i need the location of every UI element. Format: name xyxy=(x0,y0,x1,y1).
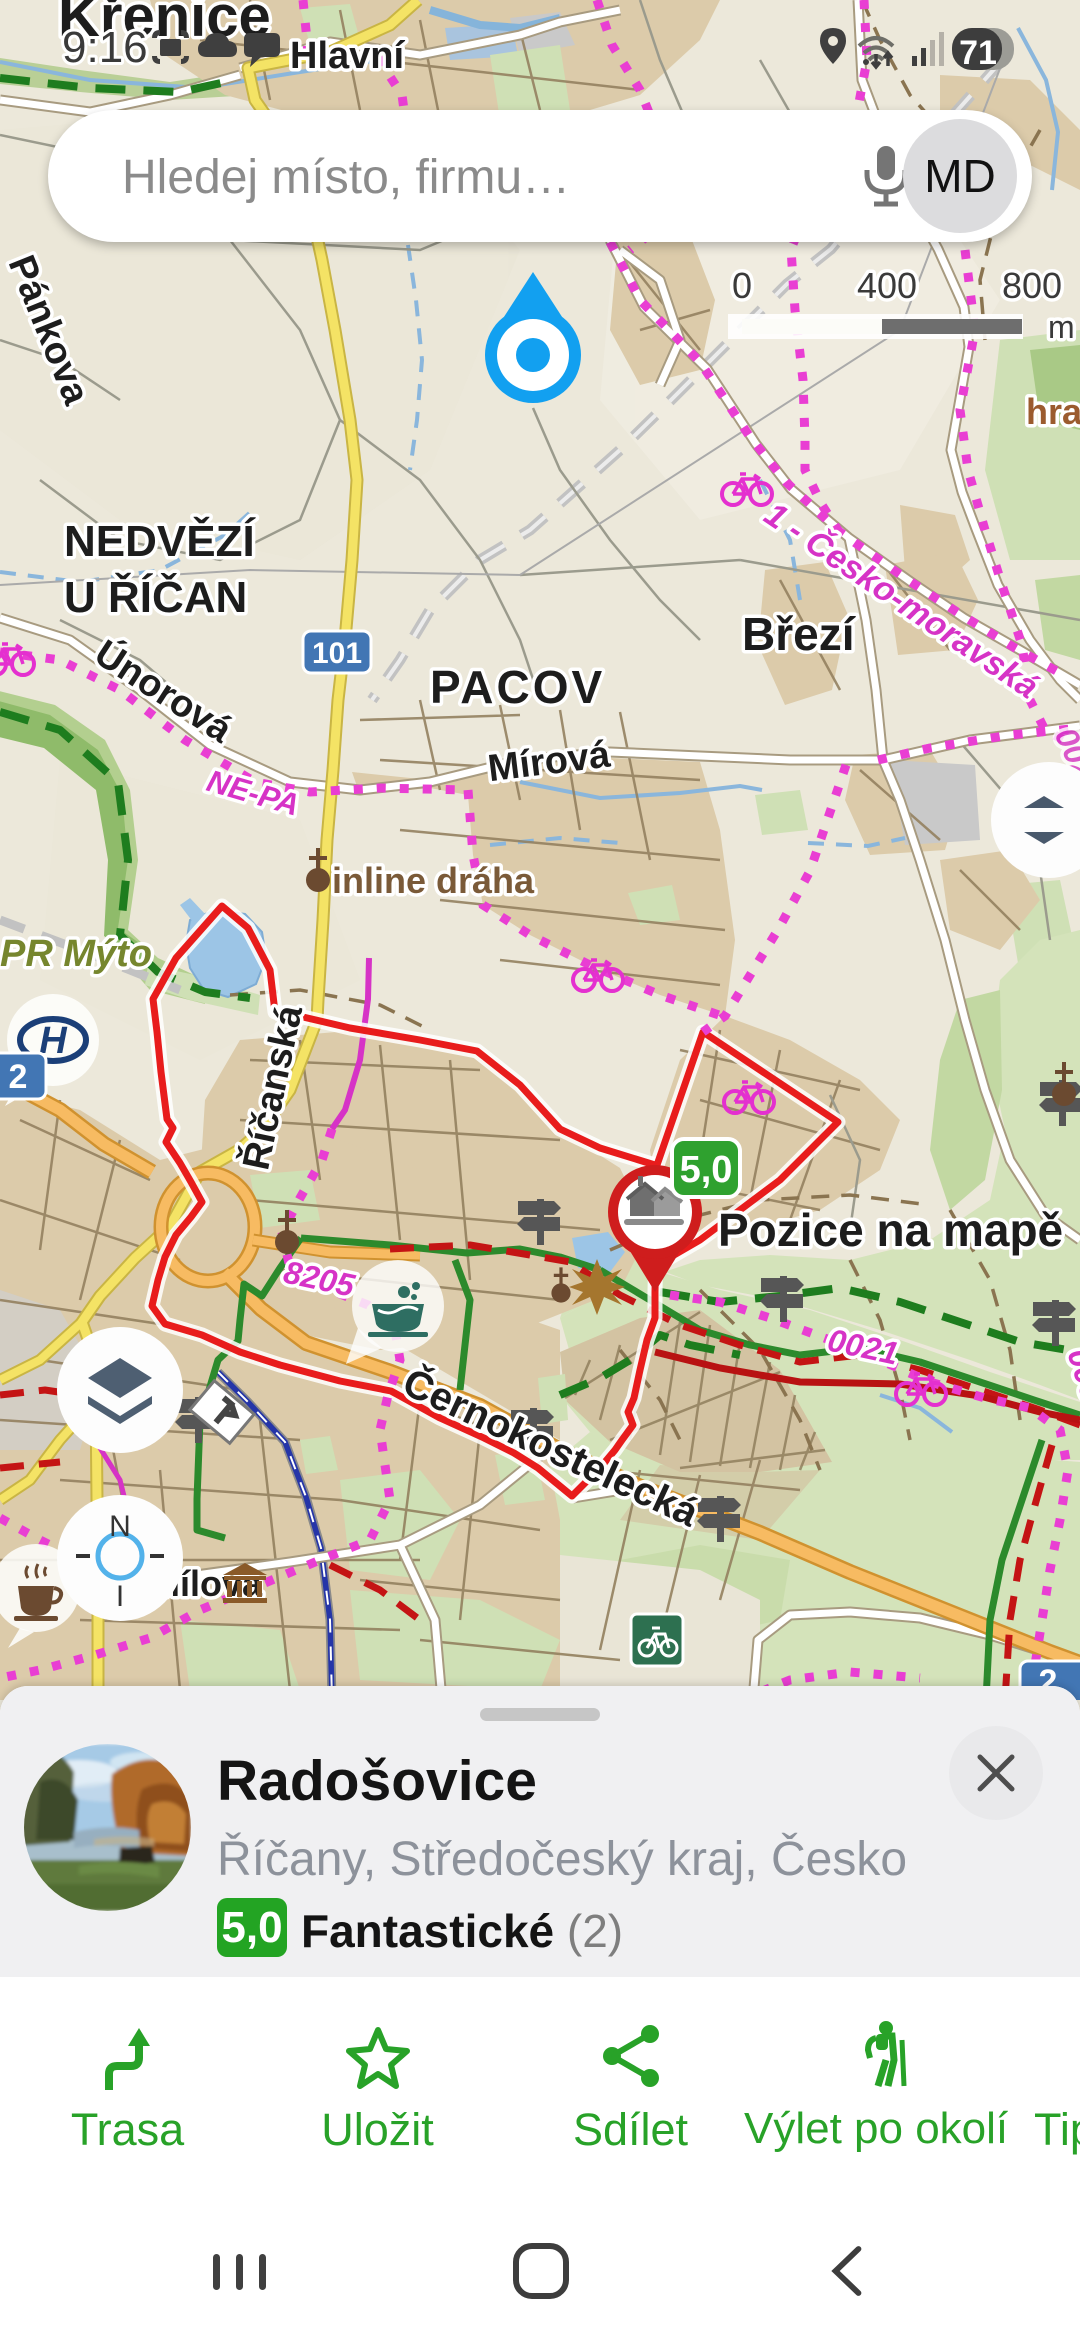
svg-text:U ŘÍČAN: U ŘÍČAN xyxy=(64,571,247,622)
svg-text:9:16: 9:16 xyxy=(62,23,148,72)
svg-text:5,0: 5,0 xyxy=(680,1149,733,1191)
svg-text:I: I xyxy=(116,1580,124,1613)
svg-text:PR Mýto: PR Mýto xyxy=(0,933,152,975)
svg-text:2: 2 xyxy=(9,1058,28,1096)
svg-text:m: m xyxy=(1048,309,1075,345)
svg-text:inline dráha: inline dráha xyxy=(332,860,535,901)
svg-text:hrad: hrad xyxy=(1026,391,1080,432)
svg-text:Březí: Březí xyxy=(742,608,857,660)
svg-text:Pozice na mapě: Pozice na mapě xyxy=(718,1204,1063,1256)
svg-text:101: 101 xyxy=(312,637,362,670)
svg-text:400: 400 xyxy=(857,265,917,306)
svg-text:71: 71 xyxy=(959,34,997,72)
svg-text:N: N xyxy=(109,1510,131,1543)
svg-text:Hlavní: Hlavní xyxy=(290,35,405,77)
svg-text:NEDVĚZÍ: NEDVĚZÍ xyxy=(64,516,256,566)
svg-text:0: 0 xyxy=(732,265,752,306)
svg-text:800: 800 xyxy=(1002,265,1062,306)
svg-text:PACOV: PACOV xyxy=(430,661,605,713)
